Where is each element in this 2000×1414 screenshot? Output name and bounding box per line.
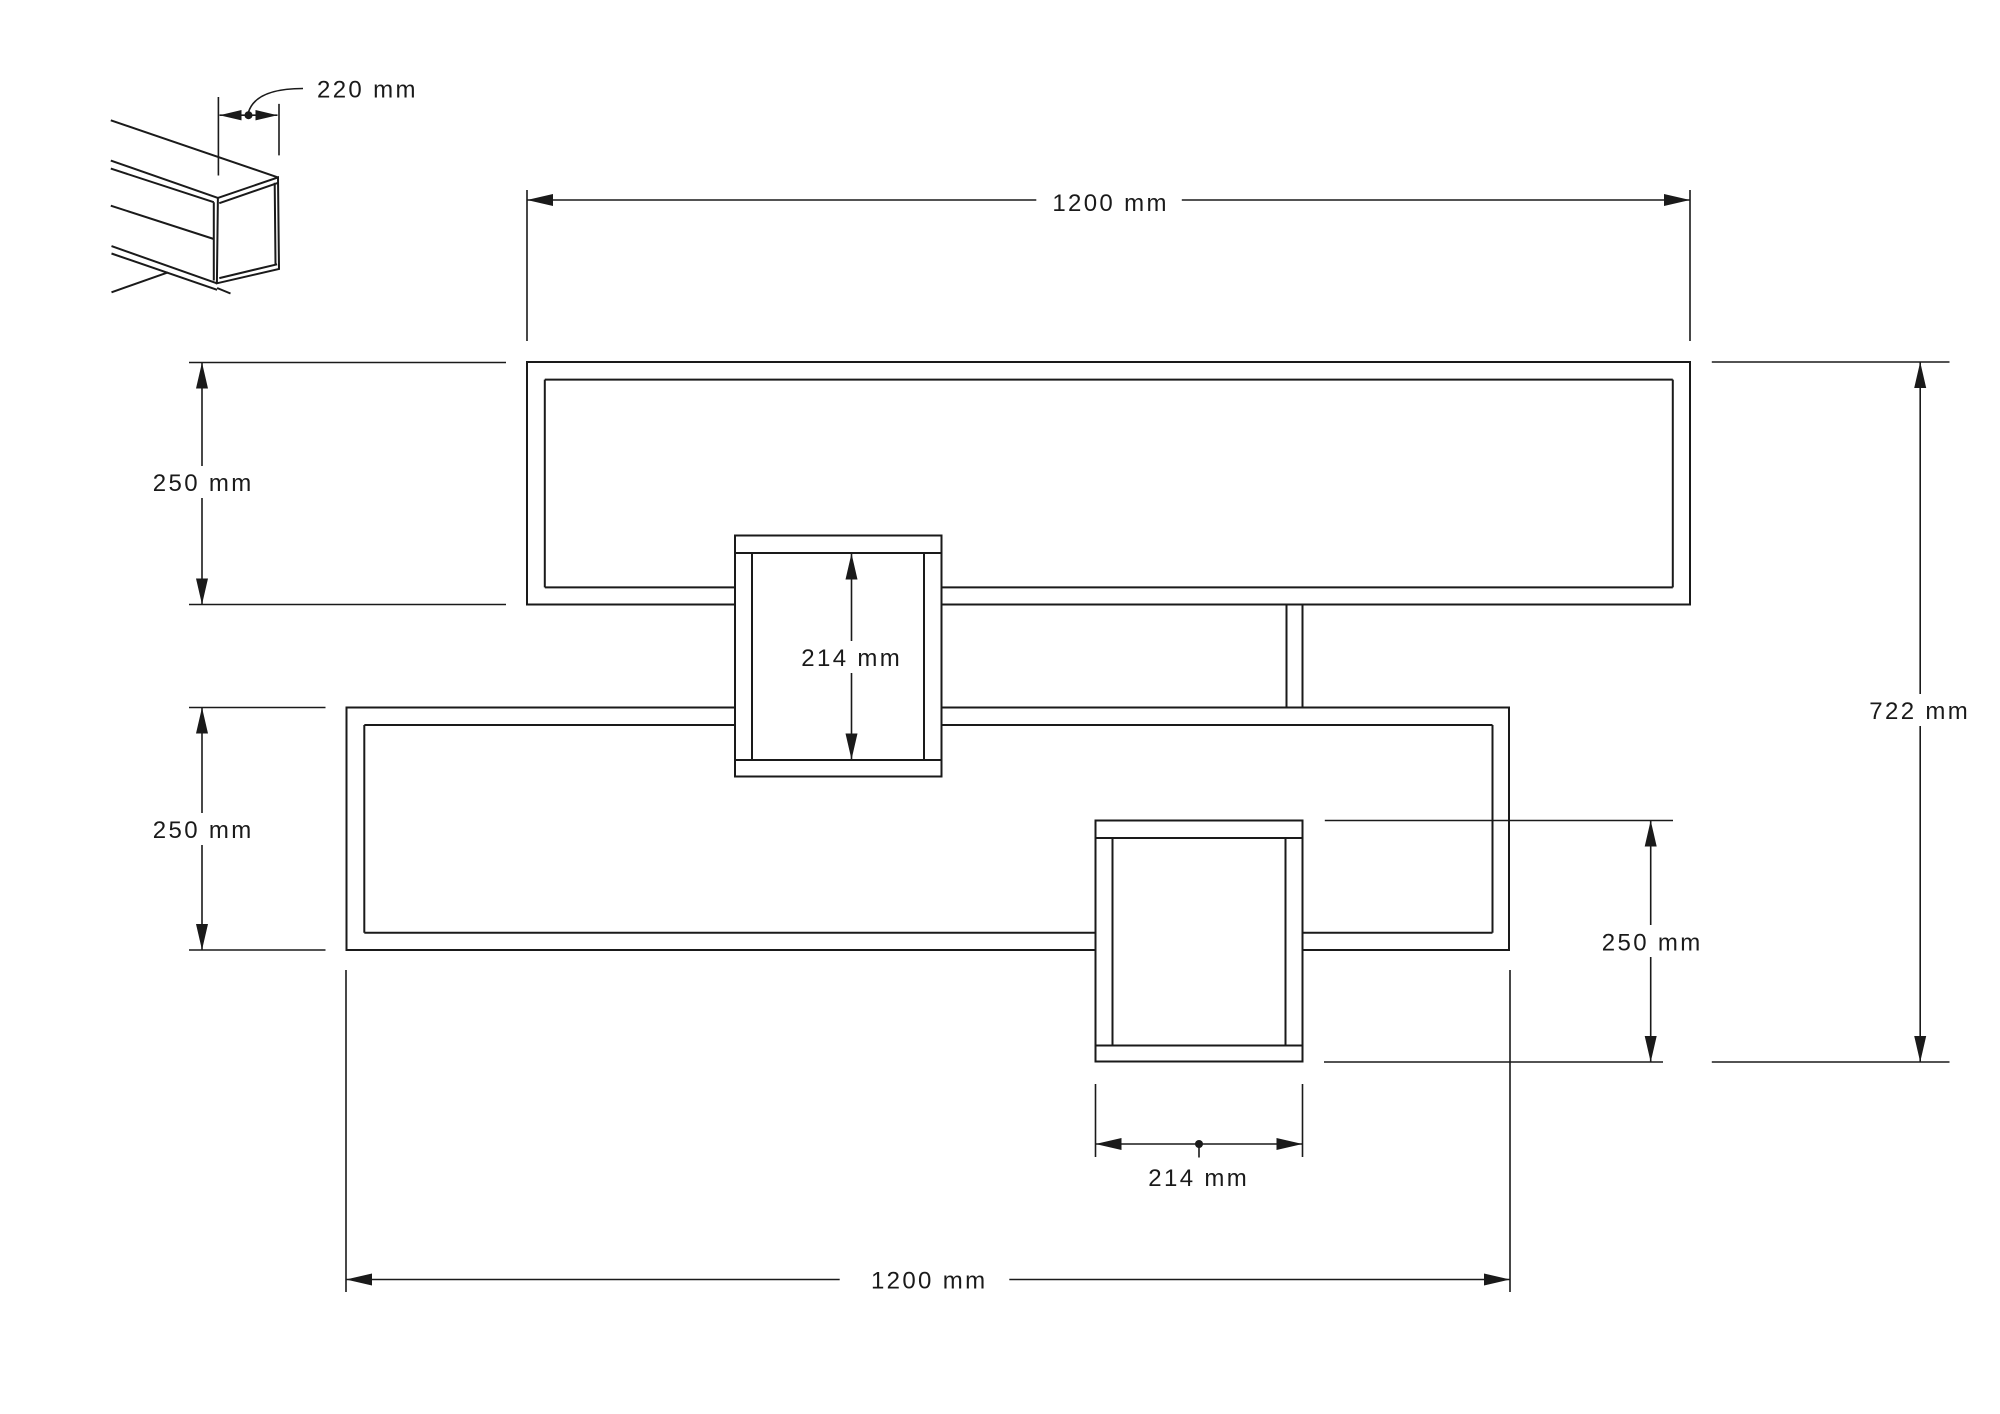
svg-text:1200 mm: 1200 mm (871, 1267, 988, 1294)
svg-text:214 mm: 214 mm (1148, 1165, 1249, 1192)
svg-text:220 mm: 220 mm (317, 77, 418, 104)
svg-text:722 mm: 722 mm (1869, 698, 1970, 725)
svg-text:214 mm: 214 mm (801, 645, 902, 672)
svg-text:1200 mm: 1200 mm (1052, 190, 1169, 217)
svg-text:250 mm: 250 mm (153, 470, 254, 497)
svg-text:250 mm: 250 mm (153, 817, 254, 844)
svg-text:250 mm: 250 mm (1602, 930, 1703, 957)
